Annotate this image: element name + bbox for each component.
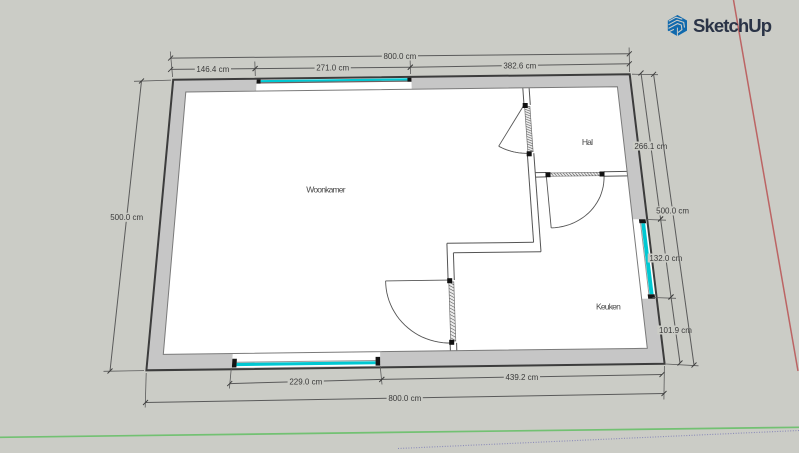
svg-text:266.1 cm: 266.1 cm <box>634 142 667 151</box>
svg-text:271.0 cm: 271.0 cm <box>316 64 349 73</box>
svg-text:229.0 cm: 229.0 cm <box>289 377 322 386</box>
svg-text:146.4 cm: 146.4 cm <box>196 65 229 74</box>
svg-text:800.0 cm: 800.0 cm <box>388 394 421 403</box>
svg-text:800.0 cm: 800.0 cm <box>383 52 416 61</box>
svg-text:Woonkamer: Woonkamer <box>306 185 345 195</box>
svg-text:500.0 cm: 500.0 cm <box>656 207 689 216</box>
svg-text:Hal: Hal <box>582 137 593 147</box>
svg-text:439.2 cm: 439.2 cm <box>505 373 538 382</box>
svg-text:132.0 cm: 132.0 cm <box>649 254 682 263</box>
svg-text:Keuken: Keuken <box>596 302 621 312</box>
svg-text:101.9 cm: 101.9 cm <box>659 326 692 335</box>
svg-text:SketchUp: SketchUp <box>693 15 772 36</box>
svg-text:500.0 cm: 500.0 cm <box>110 213 143 222</box>
svg-text:382.6 cm: 382.6 cm <box>503 61 536 70</box>
